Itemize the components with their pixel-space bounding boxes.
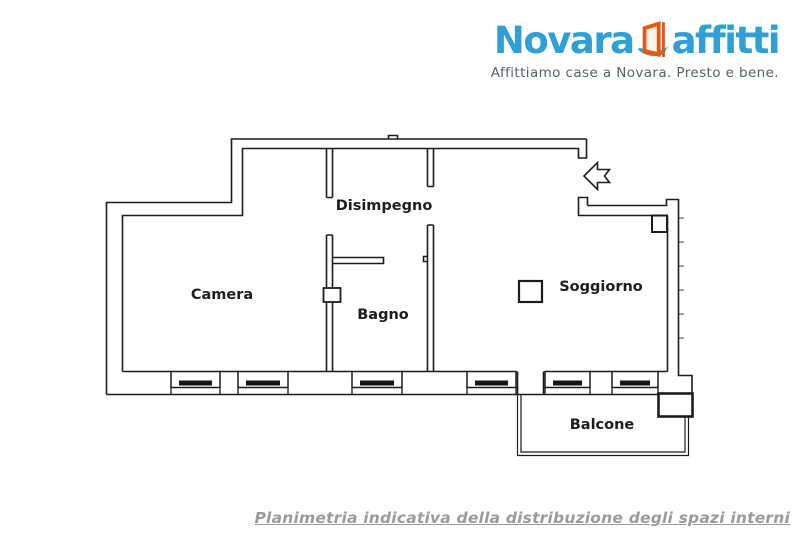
bathroom-wall-box [324, 288, 341, 302]
disclaimer-caption: Planimetria indicativa della distribuzio… [255, 509, 791, 527]
window-icon [171, 372, 220, 395]
room-label-camera: Camera [191, 287, 253, 303]
window-icon [612, 372, 658, 395]
room-label-disimpegno: Disimpegno [336, 198, 433, 214]
window-icon [238, 372, 288, 395]
window-icon [545, 372, 590, 395]
balcony-pillar [659, 394, 693, 417]
window-icon [352, 372, 402, 395]
room-label-soggiorno: Soggiorno [559, 279, 643, 295]
floorplan-page: Novara affitti Affittiamo case a Novara.… [0, 0, 800, 533]
room-label-balcone: Balcone [570, 417, 635, 433]
entrance-arrow-icon [584, 163, 610, 190]
windows [171, 372, 658, 395]
window-icon [467, 372, 516, 395]
room-label-bagno: Bagno [357, 307, 409, 323]
corner-pillar [652, 216, 667, 233]
floor-plan-drawing [0, 0, 800, 533]
wall-tick-marks [679, 218, 684, 338]
living-room-pillar [519, 281, 542, 302]
